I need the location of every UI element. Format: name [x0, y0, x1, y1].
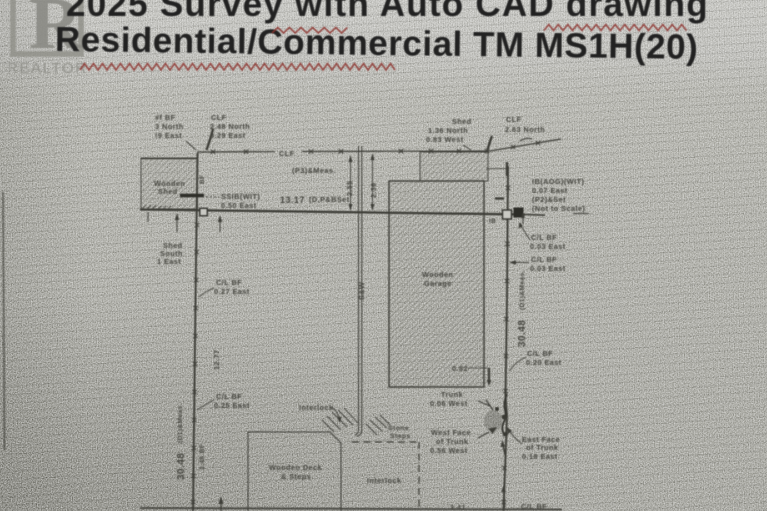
svg-text:0.83 West: 0.83 West — [426, 135, 464, 144]
svg-text:C/L BF: C/L BF — [216, 278, 242, 287]
svg-text:1.36 North: 1.36 North — [428, 126, 468, 135]
svg-text:BF: BF — [199, 174, 206, 184]
svg-text:3.41: 3.41 — [450, 503, 466, 511]
svg-text:Stone: Stone — [388, 425, 409, 432]
svg-text:12.77: 12.77 — [212, 349, 221, 370]
svg-text:West Face: West Face — [431, 428, 471, 437]
svg-text:C/L BF: C/L BF — [216, 392, 242, 401]
svg-text:13.17: 13.17 — [280, 195, 305, 205]
svg-text:IB(AOG)(WIT): IB(AOG)(WIT) — [532, 177, 585, 186]
svg-text:1 East: 1 East — [157, 257, 181, 266]
svg-text:(D1)&Meas.: (D1)&Meas. — [177, 403, 184, 443]
svg-text:(Not to Scale): (Not to Scale) — [532, 204, 585, 213]
svg-text:of Trunk: of Trunk — [526, 443, 559, 452]
svg-text:0.25 East: 0.25 East — [214, 401, 250, 410]
svg-text:0.50 East: 0.50 East — [221, 201, 257, 210]
svg-text:Shed: Shed — [452, 117, 472, 126]
svg-text:Trunk: Trunk — [441, 390, 464, 399]
svg-text:2.36: 2.36 — [371, 183, 378, 198]
svg-text:2.55: 2.55 — [347, 181, 354, 196]
svg-text:CLF: CLF — [506, 115, 522, 124]
svg-text:0.29 East: 0.29 East — [210, 131, 246, 140]
svg-text:0.20 East: 0.20 East — [526, 358, 562, 367]
svg-text:Wooden: Wooden — [422, 270, 453, 279]
svg-text:!9 East: !9 East — [155, 131, 182, 140]
svg-text:(P2)&Set: (P2)&Set — [532, 195, 566, 204]
svg-text:0.18 East: 0.18 East — [522, 452, 558, 461]
svg-text:(D1)&Meas.: (D1)&Meas. — [519, 270, 526, 310]
svg-text:#f BF: #f BF — [155, 113, 176, 122]
svg-text:Steps: Steps — [390, 433, 411, 440]
svg-text:IB: IB — [489, 218, 496, 225]
svg-text:3.48 BF: 3.48 BF — [199, 444, 206, 470]
svg-text:3 North: 3 North — [155, 122, 184, 131]
svg-text:of Trunk: of Trunk — [436, 437, 469, 446]
svg-text:2.48 North: 2.48 North — [210, 122, 250, 131]
svg-text:S&W: S&W — [357, 282, 366, 300]
svg-text:Wooden Deck: Wooden Deck — [269, 463, 323, 472]
svg-text:0.56 West: 0.56 West — [430, 446, 468, 455]
svg-text:0.82: 0.82 — [452, 364, 468, 373]
svg-text:CLF: CLF — [279, 149, 295, 158]
svg-text:0.27 East: 0.27 East — [214, 287, 250, 296]
svg-text:Garage: Garage — [424, 279, 452, 288]
svg-text:30.48: 30.48 — [176, 453, 187, 480]
svg-text:(D,P&BSet: (D,P&BSet — [309, 195, 350, 204]
svg-text:SSIB(WIT): SSIB(WIT) — [221, 192, 260, 201]
svg-text:2.63 North: 2.63 North — [505, 125, 545, 134]
svg-text:C/L BF: C/L BF — [527, 349, 553, 358]
svg-text:0.03 East: 0.03 East — [530, 242, 566, 251]
svg-text:& Steps: & Steps — [281, 472, 311, 481]
svg-text:30.48: 30.48 — [517, 320, 528, 347]
svg-text:(P3)&Meas.: (P3)&Meas. — [292, 166, 336, 175]
svg-text:0.06 West: 0.06 West — [430, 399, 468, 408]
svg-text:C/L BF: C/L BF — [531, 255, 557, 264]
svg-text:Interlock: Interlock — [299, 403, 334, 412]
svg-text:C/L BF: C/L BF — [521, 502, 547, 511]
svg-text:0.03 East: 0.03 East — [530, 264, 566, 273]
svg-text:Shed: Shed — [158, 187, 178, 196]
svg-text:Interlock: Interlock — [367, 476, 402, 485]
svg-text:0.07 East: 0.07 East — [532, 186, 568, 195]
svg-text:C/L BF: C/L BF — [531, 233, 557, 242]
svg-text:CLF: CLF — [211, 113, 227, 122]
